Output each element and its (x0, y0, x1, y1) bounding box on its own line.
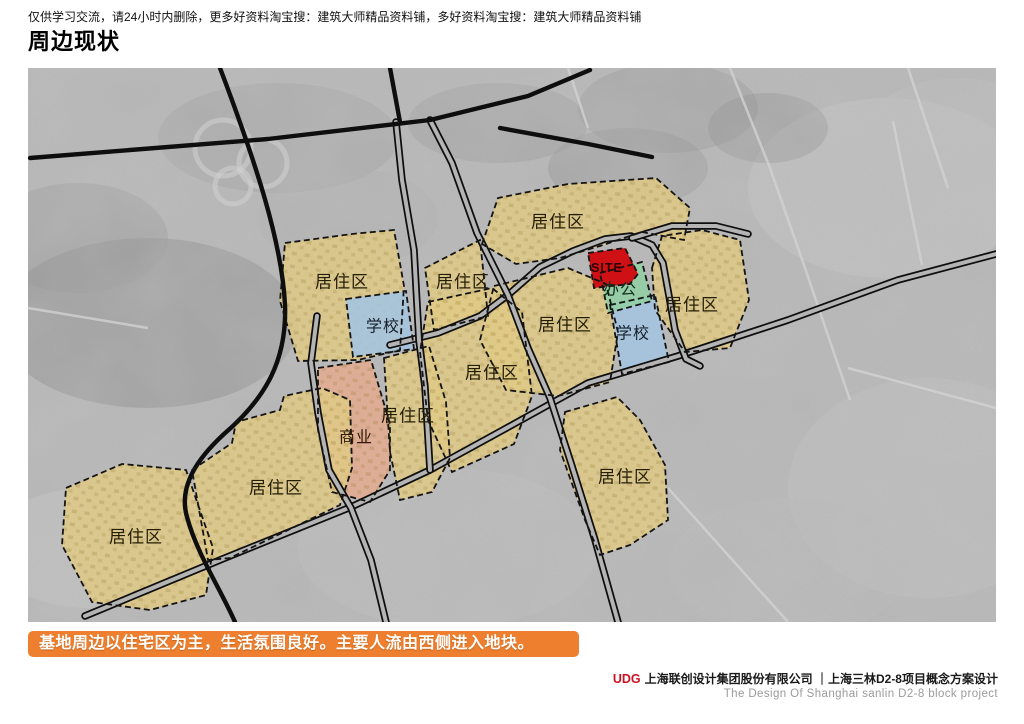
zone-label-residential-2: 居住区 (436, 273, 490, 292)
zone-label-residential-3: 居住区 (531, 213, 585, 232)
zone-label-residential-9: 居住区 (109, 528, 163, 547)
zone-label-site: SITE (591, 261, 623, 275)
zone-label-school-2: 学校 (616, 325, 650, 343)
zone-label-school-1: 学校 (366, 318, 400, 336)
footer: UDG上海联创设计集团股份有限公司 ｜上海三林D2-8项目概念方案设计 The … (613, 673, 998, 701)
watermark-notice: 仅供学习交流，请24小时内删除，更多好资料淘宝搜：建筑大师精品资料铺，多好资料淘… (28, 8, 988, 25)
zone-label-residential-6: 居住区 (465, 364, 519, 383)
footer-company-line: UDG上海联创设计集团股份有限公司 ｜上海三林D2-8项目概念方案设计 (613, 673, 998, 686)
footer-company-text: 上海联创设计集团股份有限公司 ｜上海三林D2-8项目概念方案设计 (645, 672, 998, 686)
site-analysis-map: 居住区学校居住区居住区居住区居住区学校办公SITE居住区商业居住区居住区居住区居… (28, 68, 996, 622)
zone-label-residential-4: 居住区 (665, 296, 719, 315)
zone-label-residential-7: 居住区 (381, 407, 435, 426)
footer-project-subtitle: The Design Of Shanghai sanlin D2-8 block… (613, 688, 998, 701)
zone-label-residential-10: 居住区 (598, 468, 652, 487)
zone-label-residential-1: 居住区 (315, 273, 369, 292)
zone-label-office: 办公 (603, 281, 637, 299)
zone-label-residential-5: 居住区 (538, 316, 592, 335)
conclusion-banner: 基地周边以住宅区为主，生活氛围良好。主要人流由西侧进入地块。 (28, 631, 579, 657)
page-title: 周边现状 (28, 24, 120, 56)
zone-label-commercial: 商业 (339, 429, 373, 447)
site-analysis-map-svg: 居住区学校居住区居住区居住区居住区学校办公SITE居住区商业居住区居住区居住区居… (28, 68, 996, 622)
udg-logo: UDG (613, 672, 641, 686)
zone-label-residential-8: 居住区 (249, 479, 303, 498)
